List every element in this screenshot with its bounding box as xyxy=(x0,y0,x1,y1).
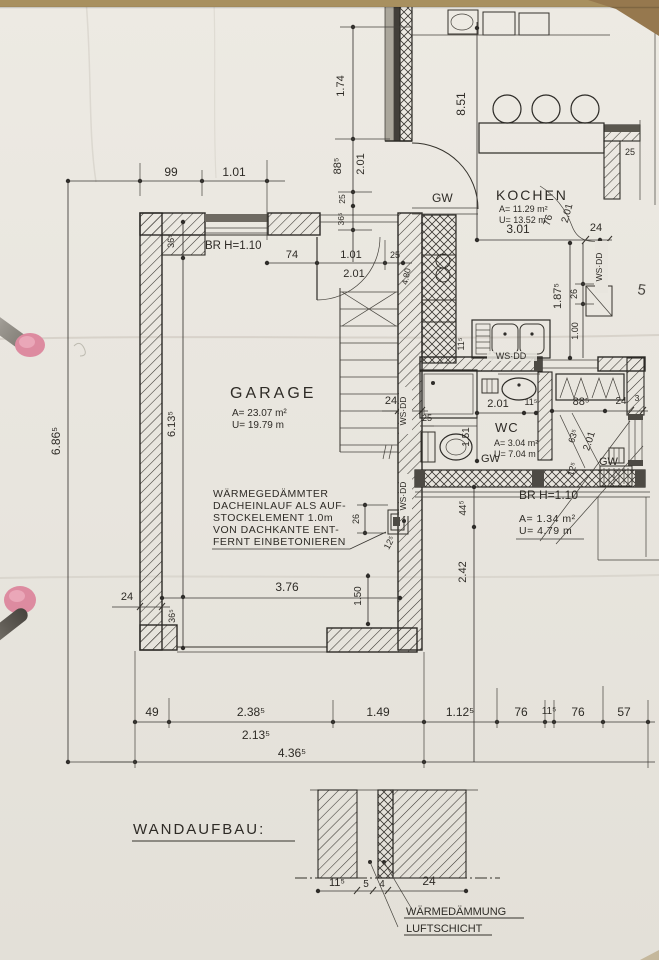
dim-k100: 1.00 xyxy=(570,322,580,340)
parapet-label-storage: BR H=1.10 xyxy=(519,488,578,502)
dim-corner-25: 25 xyxy=(625,147,635,157)
dim-b4365: 4.36⁵ xyxy=(278,746,306,760)
dim-ga6135: 6.13⁵ xyxy=(166,411,178,437)
dim-v365: 36⁵ xyxy=(336,213,346,226)
note-line-2: DACHEINLAUF ALS AUF- xyxy=(213,500,346,512)
dim-v242: 2.42 xyxy=(457,561,469,582)
dim-k851: 8.51 xyxy=(454,92,468,116)
dim-wc201: 2.01 xyxy=(487,398,508,410)
ws-dim-24: 24 xyxy=(422,874,436,888)
garage-perimeter: U= 19.79 m xyxy=(232,420,284,431)
wc-area: A= 3.04 m² xyxy=(494,438,538,448)
parapet-label-garage: BR H=1.10 xyxy=(205,240,262,252)
dim-wc885: 88⁵ xyxy=(573,396,590,408)
room-name-kochen: KOCHEN xyxy=(496,187,568,203)
dim-k1875: 1.87⁵ xyxy=(552,283,564,309)
wall-section-insulation-label: WÄRMEDÄMMUNG xyxy=(406,906,506,918)
note-line-3: STOCKELEMENT 1.0m xyxy=(213,512,333,524)
dim-b76b: 76 xyxy=(571,705,585,719)
dim-top-101: 1.01 xyxy=(222,165,246,179)
roof-drain-note: WÄRMEGEDÄMMTER DACHEINLAUF ALS AUF- STOC… xyxy=(213,488,346,548)
note-line-5: FERNT EINBETONIEREN xyxy=(213,536,346,548)
wsdd-label-kitchen-right: WS·DD xyxy=(594,253,604,282)
kochen-area: A= 11.29 m² xyxy=(499,204,548,214)
dim-b115: 11⁵ xyxy=(542,706,557,717)
dim-k26: 26 xyxy=(569,289,579,299)
dim-k115: 11⁵ xyxy=(456,337,466,350)
dim-v25: 25 xyxy=(337,194,347,204)
window-band xyxy=(205,214,268,222)
gw-label-entrance: GW xyxy=(432,191,453,205)
dim-wc3: 3 xyxy=(635,393,640,403)
dim-v445: 44⁵ xyxy=(458,500,469,515)
ws-dim-4: 4 xyxy=(379,879,385,890)
dim-k301: 3.01 xyxy=(506,222,530,236)
wall-section-title: WANDAUFBAU: xyxy=(133,821,265,838)
dim-k24: 24 xyxy=(590,222,602,234)
dim-b149: 1.49 xyxy=(366,705,390,719)
ws-dim-115: 11⁵ xyxy=(329,877,345,889)
dim-b2385: 2.38⁵ xyxy=(237,705,265,719)
storage-perimeter: U= 4.79 m xyxy=(519,525,572,537)
dim-wc151: 1.51 xyxy=(461,427,472,447)
dim-wc24: 24 xyxy=(615,396,627,407)
dim-wc115: 11⁵ xyxy=(524,397,537,407)
dim-v885: 88⁵ xyxy=(332,158,344,175)
wall-section-air-label: LUFTSCHICHT xyxy=(406,923,483,935)
wc-perimeter: U= 7.04 m xyxy=(494,449,536,459)
dim-b76a: 76 xyxy=(514,705,528,719)
dim-g25: 25 xyxy=(390,250,400,260)
wsdd-label-sink: WS·DD xyxy=(496,351,527,361)
gw-label-wc: GW xyxy=(481,453,501,465)
dim-v201: 2.01 xyxy=(355,153,367,174)
dim-gc24: 24 xyxy=(385,395,397,407)
dim-ga365-top: 36⁵ xyxy=(166,234,176,248)
dim-ga150: 1.50 xyxy=(353,586,364,606)
dim-b1125: 1.12⁵ xyxy=(446,705,474,719)
dim-b57: 57 xyxy=(617,705,631,719)
table-edge-top xyxy=(0,0,659,7)
dim-b2135: 2.13⁵ xyxy=(242,728,270,742)
note-line-4: VON DACHKANTE ENT- xyxy=(213,524,339,536)
dim-wc25: 25 xyxy=(422,413,432,423)
installation-shaft xyxy=(422,215,456,363)
garage-area: A= 23.07 m² xyxy=(232,408,287,419)
wsdd-label-garage-lower: WS·DD xyxy=(398,482,408,511)
dim-ga26: 26 xyxy=(351,514,361,524)
wsdd-label-garage-upper: WS·DD xyxy=(398,397,408,426)
dim-b49: 49 xyxy=(145,705,159,719)
floor-plan-photo: GARAGE A= 23.07 m² U= 19.79 m KOCHEN A= … xyxy=(0,0,659,960)
note-line-1: WÄRMEGEDÄMMTER xyxy=(213,488,329,500)
dim-total-6865: 6.86⁵ xyxy=(49,427,63,455)
floor-plan-drawing: GARAGE A= 23.07 m² U= 19.79 m KOCHEN A= … xyxy=(0,0,659,960)
room-name-garage: GARAGE xyxy=(230,385,316,402)
dim-g74: 74 xyxy=(286,249,298,261)
dim-g201: 2.01 xyxy=(343,268,364,280)
dim-ga376: 3.76 xyxy=(275,580,299,594)
ws-dim-5: 5 xyxy=(363,879,369,890)
gw-label-storage: GW xyxy=(599,456,619,468)
dim-ga24: 24 xyxy=(121,591,133,603)
dim-v174: 1.74 xyxy=(335,75,347,96)
room-name-wc: WC xyxy=(495,420,519,435)
storage-area: A= 1.34 m² xyxy=(519,513,576,525)
dim-g101: 1.01 xyxy=(340,249,361,261)
dim-top-99: 99 xyxy=(164,165,178,179)
dim-ga365-bottom: 36⁵ xyxy=(167,609,177,623)
